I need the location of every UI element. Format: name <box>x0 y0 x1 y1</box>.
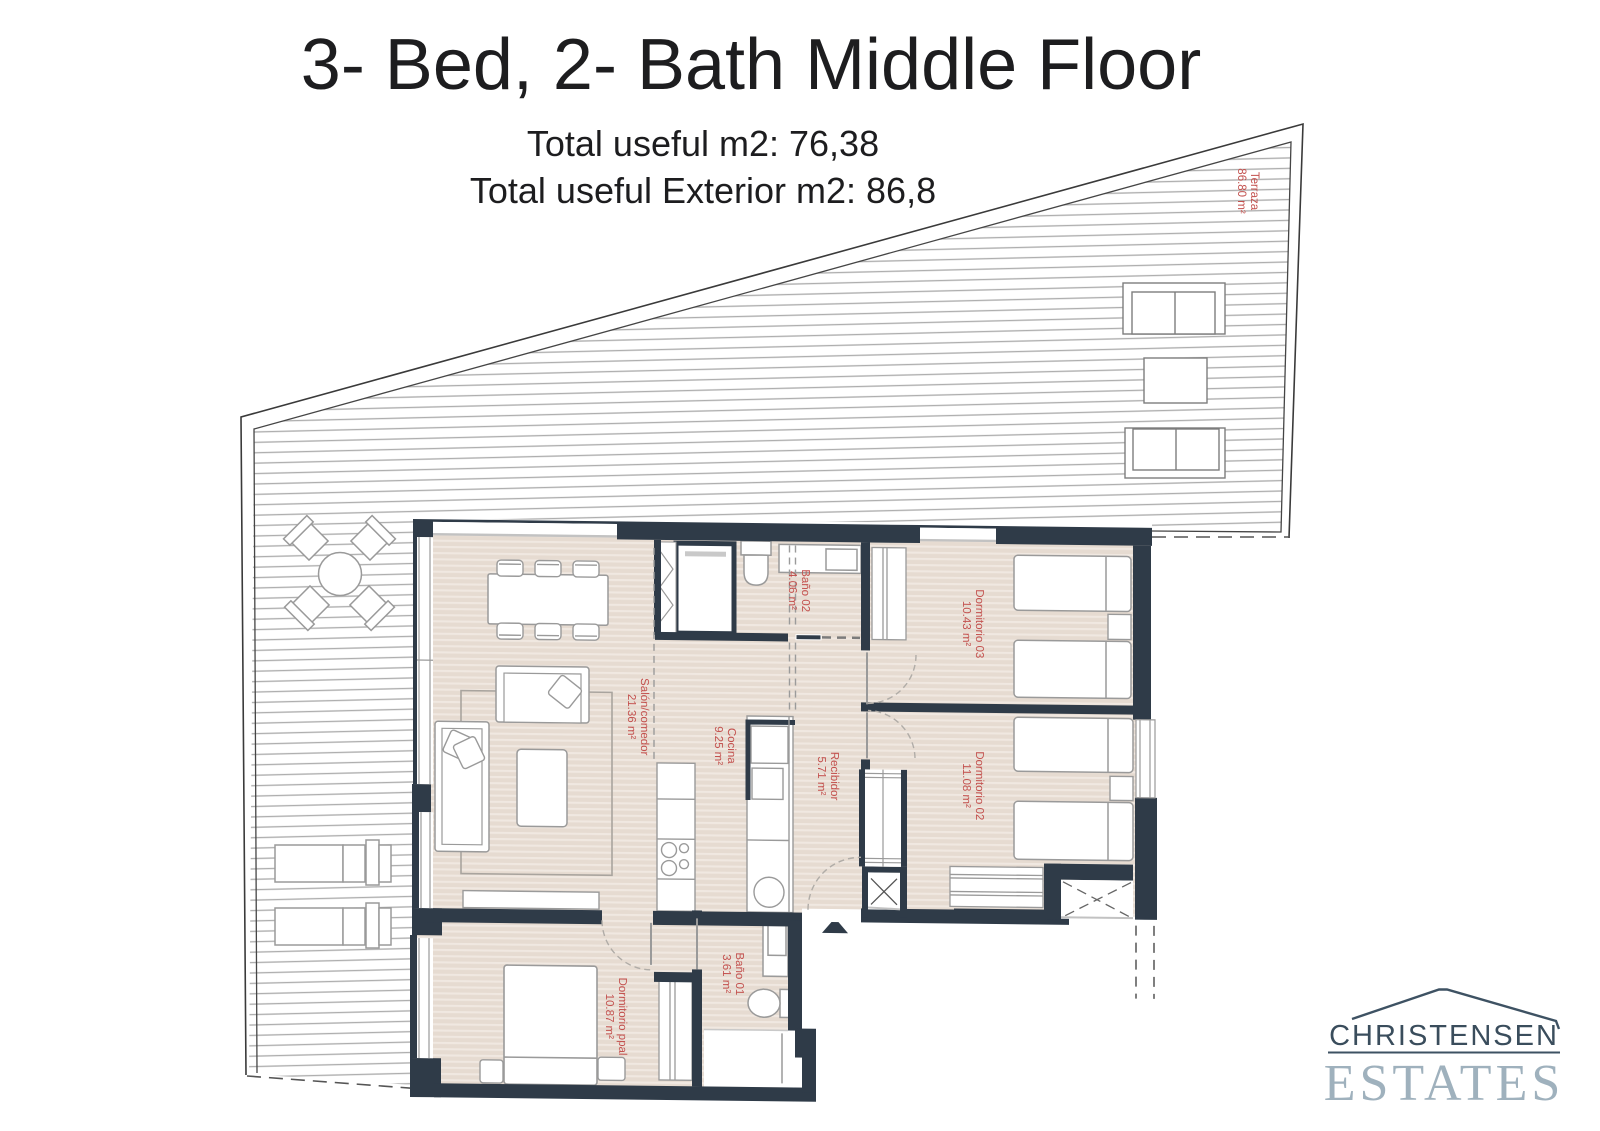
svg-text:3.61 m²: 3.61 m² <box>720 954 732 993</box>
svg-text:ESTATES: ESTATES <box>1324 1055 1565 1112</box>
svg-text:Dormitorio 03: Dormitorio 03 <box>973 589 985 658</box>
svg-text:9.25 m²: 9.25 m² <box>712 726 724 765</box>
svg-text:86.80 m²: 86.80 m² <box>1235 168 1247 214</box>
svg-text:Terraza: Terraza <box>1248 172 1260 211</box>
svg-text:10.43 m²: 10.43 m² <box>960 601 972 647</box>
svg-text:4.06 m²: 4.06 m² <box>786 571 798 610</box>
svg-text:11.08 m²: 11.08 m² <box>960 763 972 808</box>
svg-text:Recibidor: Recibidor <box>828 752 840 801</box>
svg-text:Total useful m2: 76,38: Total useful m2: 76,38 <box>527 123 879 164</box>
svg-text:21.36 m²: 21.36 m² <box>625 694 637 740</box>
svg-text:10.87 m²: 10.87 m² <box>603 994 615 1040</box>
svg-text:3- Bed, 2- Bath Middle Floor: 3- Bed, 2- Bath Middle Floor <box>301 25 1201 105</box>
svg-text:Dormitorio 02: Dormitorio 02 <box>973 751 985 820</box>
svg-text:5.71 m²: 5.71 m² <box>815 756 827 795</box>
svg-text:Baño 01: Baño 01 <box>733 952 745 995</box>
svg-text:Dormitorio ppal: Dormitorio ppal <box>616 977 628 1055</box>
svg-text:CHRISTENSEN: CHRISTENSEN <box>1329 1020 1559 1052</box>
svg-text:Total useful Exterior m2: 86,8: Total useful Exterior m2: 86,8 <box>470 170 936 211</box>
svg-text:Salón/comedor: Salón/comedor <box>638 678 650 756</box>
svg-text:Baño 02: Baño 02 <box>799 569 811 612</box>
svg-text:Cocina: Cocina <box>725 728 737 765</box>
